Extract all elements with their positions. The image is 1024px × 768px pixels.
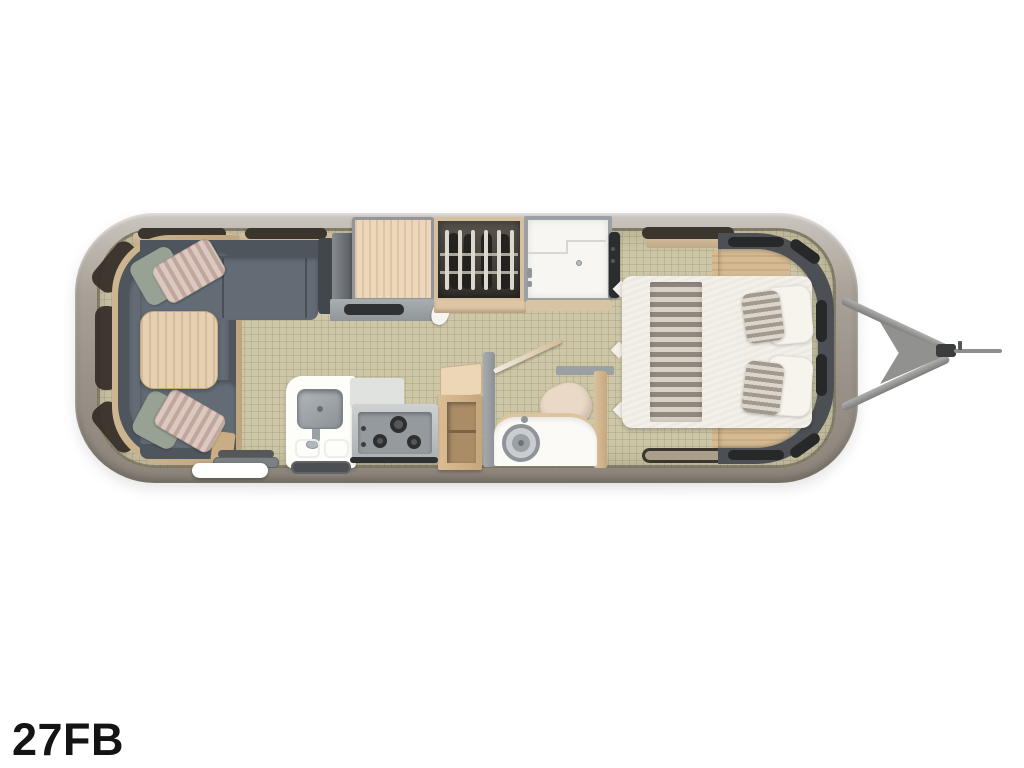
vanity-faucet	[521, 416, 528, 423]
closet-rod	[440, 271, 518, 274]
bed-pillow-striped	[741, 360, 785, 416]
front-window-slot	[816, 354, 827, 396]
shower-fixture	[527, 268, 532, 278]
island-shelf-divider	[447, 430, 476, 433]
model-label: 27FB	[12, 714, 124, 766]
front-window-slot	[816, 300, 827, 342]
front-window-slot	[728, 450, 784, 460]
hanger	[510, 230, 514, 290]
hanger	[458, 230, 462, 290]
tv-knob	[611, 259, 615, 263]
hitch-coupler	[936, 344, 956, 357]
bed-pillow-striped	[741, 290, 786, 345]
front-window-slot	[728, 237, 784, 247]
entry-mat	[291, 461, 351, 474]
vanity-sink-drain	[518, 440, 524, 446]
shower-drain	[576, 260, 582, 266]
shower-sill	[526, 300, 612, 311]
bed-runner-striped	[650, 282, 702, 422]
refrigerator-cabinet	[332, 233, 354, 303]
oven-handle	[350, 457, 438, 463]
entry-step	[192, 463, 268, 478]
wardrobe-sill	[434, 300, 526, 313]
shower-pan-edge	[566, 240, 568, 254]
burner	[407, 435, 421, 449]
floorplan-canvas: 27FB	[0, 0, 1024, 768]
shower-pan-edge	[566, 240, 606, 242]
burner	[373, 434, 387, 448]
hanger	[445, 230, 449, 290]
counter-drawer	[295, 439, 320, 458]
shower-room	[524, 216, 612, 302]
shower-pan-edge	[528, 252, 568, 254]
closet-rod	[440, 253, 518, 256]
tv-knob	[611, 247, 615, 251]
burner	[390, 416, 407, 433]
counter-drawer	[324, 439, 349, 458]
hanger	[484, 230, 488, 290]
window-lounge-top-2	[245, 228, 327, 239]
hanger	[497, 230, 501, 290]
kitchen-sink-drain	[317, 406, 323, 412]
shower-fixture	[527, 281, 532, 287]
hanger	[471, 230, 475, 290]
oven-front	[344, 304, 404, 315]
island-counter-top	[440, 363, 482, 399]
dinette-table	[140, 311, 218, 389]
hitch-pin	[958, 341, 962, 350]
stove-knob	[361, 442, 366, 447]
pantry-cabinet	[352, 217, 434, 301]
stove-knob	[361, 426, 366, 431]
cushion-seam	[305, 258, 307, 318]
